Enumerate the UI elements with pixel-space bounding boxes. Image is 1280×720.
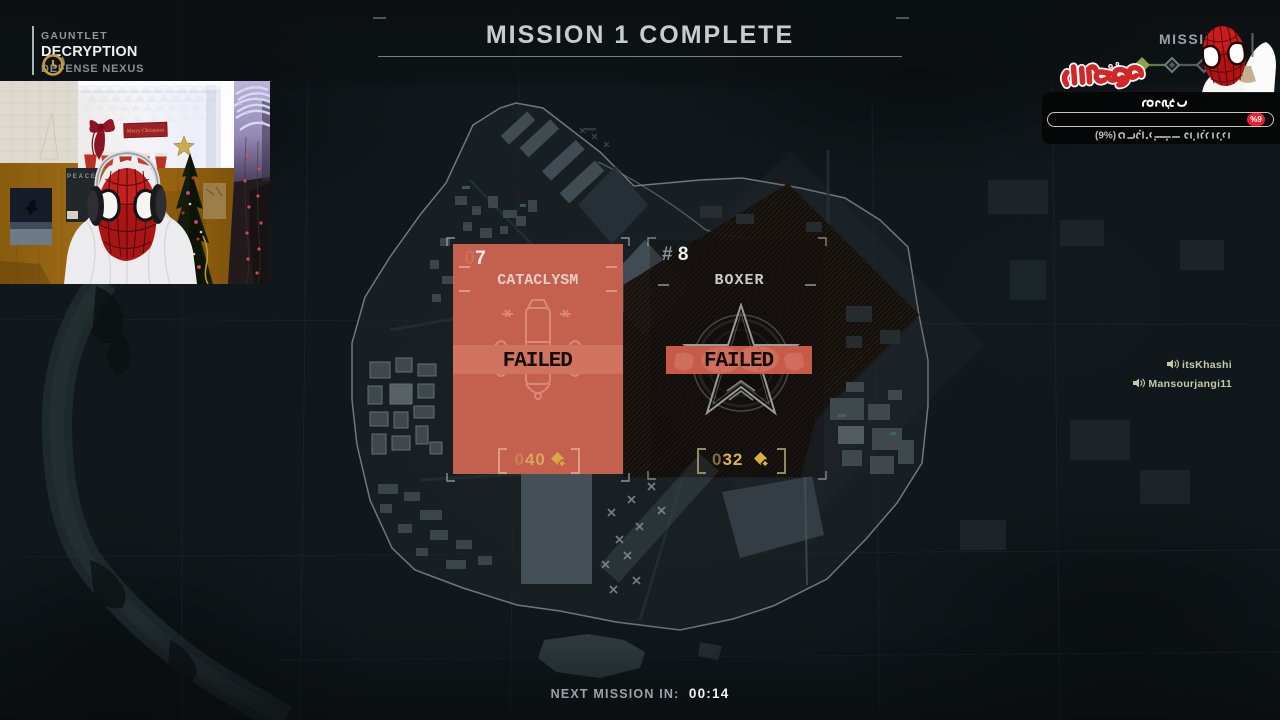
svg-text:PEACE: PEACE [67, 174, 97, 180]
svg-text:(9%): (9%) [1095, 131, 1116, 142]
